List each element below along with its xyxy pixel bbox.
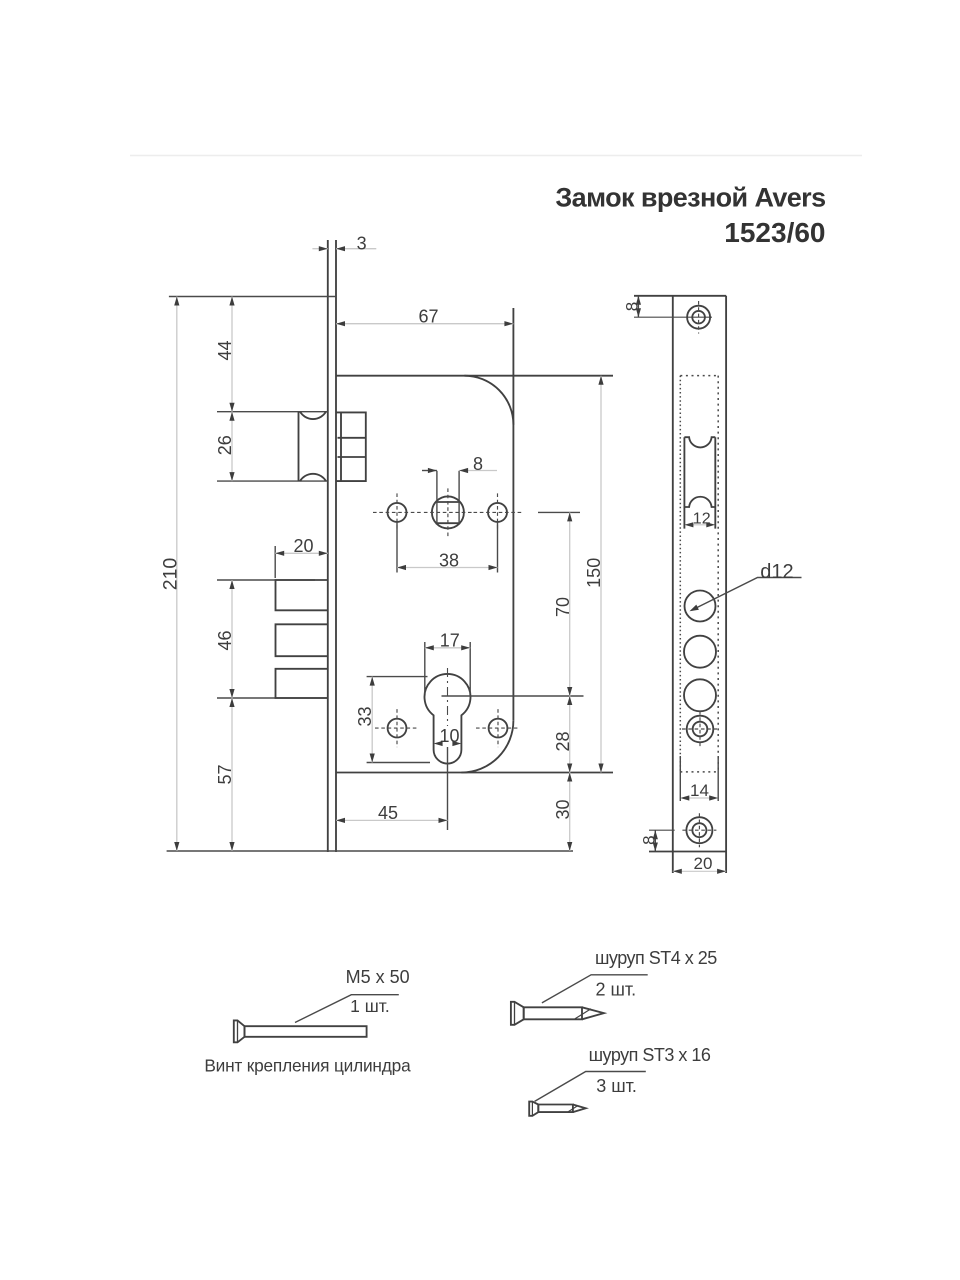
svg-text:26: 26 [215, 435, 235, 455]
svg-text:17: 17 [440, 631, 460, 651]
svg-text:3: 3 [357, 234, 367, 254]
svg-text:150: 150 [584, 558, 604, 588]
svg-text:57: 57 [215, 764, 235, 784]
svg-text:20: 20 [293, 536, 313, 556]
svg-text:33: 33 [355, 706, 375, 726]
svg-text:46: 46 [215, 630, 235, 650]
svg-text:14: 14 [690, 781, 709, 800]
svg-text:28: 28 [553, 731, 573, 751]
svg-text:2 шт.: 2 шт. [595, 980, 636, 1000]
svg-text:M5 x 50: M5 x 50 [346, 967, 410, 987]
svg-text:44: 44 [215, 340, 235, 360]
svg-text:1523/60: 1523/60 [724, 217, 825, 248]
svg-text:шуруп ST3 x 16: шуруп ST3 x 16 [589, 1045, 711, 1065]
svg-text:d12: d12 [760, 561, 793, 583]
svg-text:210: 210 [160, 558, 182, 591]
svg-text:67: 67 [418, 307, 438, 327]
svg-text:шуруп ST4 x 25: шуруп ST4 x 25 [595, 948, 717, 968]
svg-text:45: 45 [378, 803, 398, 823]
svg-text:1 шт.: 1 шт. [350, 996, 390, 1016]
svg-text:Замок врезной Avers: Замок врезной Avers [555, 183, 825, 213]
svg-text:38: 38 [439, 550, 459, 570]
svg-text:3 шт.: 3 шт. [596, 1076, 637, 1096]
svg-text:8: 8 [623, 302, 642, 311]
svg-text:8: 8 [473, 454, 483, 474]
svg-text:70: 70 [553, 597, 573, 617]
svg-text:Винт крепления цилиндра: Винт крепления цилиндра [204, 1056, 411, 1076]
svg-text:30: 30 [553, 799, 573, 819]
svg-text:8: 8 [640, 835, 659, 844]
svg-text:20: 20 [694, 854, 713, 873]
